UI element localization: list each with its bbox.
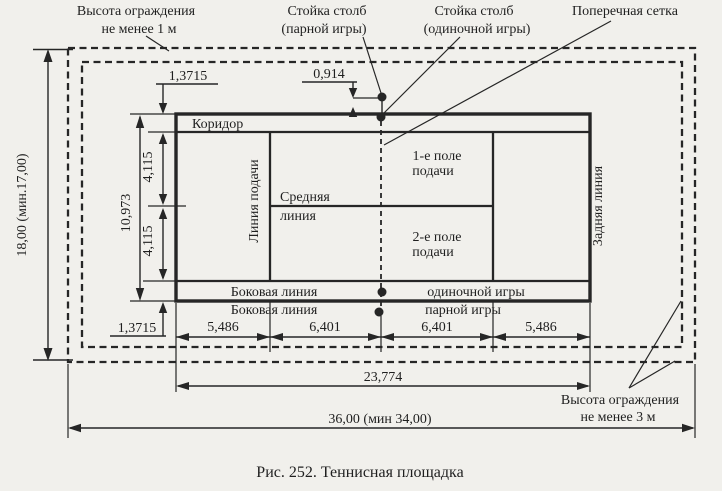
label-sideline-doubles-right: парной игры xyxy=(425,303,501,318)
arrow-court-width-bottom xyxy=(136,288,144,301)
arrow-chain-right xyxy=(577,333,590,341)
label-service-line: Линия подачи xyxy=(247,159,262,243)
arrow-chain-left xyxy=(176,333,189,341)
label-fence-bottom-line2: не менее 3 м xyxy=(580,410,655,425)
dim-court-length: 23,774 xyxy=(364,370,403,385)
label-serve1-line2: подачи xyxy=(412,164,454,179)
figure-caption: Рис. 252. Теннисная площадка xyxy=(256,464,463,481)
label-center-line2: линия xyxy=(280,209,316,224)
dim-serve-width-1: 4,115 xyxy=(141,152,156,183)
label-fence-top-line2: не менее 1 м xyxy=(101,22,176,37)
arrow-down-total-height xyxy=(44,348,53,361)
label-net: Поперечная сетка xyxy=(572,4,679,19)
scanned-page: Высота ограждения не менее 1 м Стойка ст… xyxy=(0,0,722,491)
dim-segment-2: 6,401 xyxy=(309,320,341,335)
arrow-chain-381-l xyxy=(368,333,381,341)
label-post-single-line2: (одиночной игры) xyxy=(424,22,531,37)
dim-alley-bottom: 1,3715 xyxy=(118,321,157,336)
arrow-up-total-height xyxy=(44,49,53,62)
label-sideline-doubles-left: Боковая линия xyxy=(231,303,318,318)
dim-serve-width-2: 4,115 xyxy=(141,226,156,257)
label-fence-top-line1: Высота ограждения xyxy=(77,4,196,19)
dim-segment-3: 6,401 xyxy=(421,320,453,335)
arrow-post-offset-down xyxy=(349,88,357,98)
label-serve2-line2: подачи xyxy=(412,245,454,260)
arrow-chain-493-r xyxy=(493,333,506,341)
arrow-chain-493-l xyxy=(480,333,493,341)
label-sideline-singles-left: Боковая линия xyxy=(231,285,318,300)
label-serve2-line1: 2-е поле xyxy=(413,230,462,245)
label-sideline-singles-right: одиночной игры xyxy=(427,285,525,300)
dim-alley-top: 1,3715 xyxy=(169,69,208,84)
dim-total-height: 18,00 (мин.17,00) xyxy=(15,153,30,257)
net-post-dot-doubles-bottom xyxy=(375,308,384,317)
arrow-chain-381-r xyxy=(381,333,394,341)
label-fence-bottom-line1: Высота ограждения xyxy=(561,393,680,408)
label-center-line1: Средняя xyxy=(280,190,330,205)
arrow-post-offset-up xyxy=(349,107,357,117)
dim-post-offset: 0,914 xyxy=(313,67,345,82)
leader-fence-bottom-b xyxy=(629,361,675,388)
leader-net xyxy=(384,21,611,145)
label-corridor: Коридор xyxy=(192,117,243,132)
arrow-court-length-left xyxy=(176,382,189,390)
dim-court-width: 10,973 xyxy=(119,194,134,233)
court-boundary-rect xyxy=(176,114,590,301)
dim-segment-1: 5,486 xyxy=(207,320,239,335)
arrow-court-width-top xyxy=(136,115,144,128)
net-post-dot-singles-bottom xyxy=(378,288,387,297)
dim-segment-4: 5,486 xyxy=(525,320,557,335)
label-post-pair-line2: (парной игры) xyxy=(281,22,366,37)
arrow-serve-w2-down xyxy=(159,269,167,280)
net-post-dot-singles-top xyxy=(377,113,386,122)
arrow-court-length-right xyxy=(577,382,590,390)
leader-post-doubles xyxy=(363,37,381,93)
arrow-alley-top-down xyxy=(159,103,167,114)
leader-fence-bottom-a xyxy=(629,301,681,388)
arrow-total-width-left xyxy=(68,424,81,432)
arrow-chain-270-r xyxy=(270,333,283,341)
arrow-chain-270-l xyxy=(257,333,270,341)
label-post-pair-line1: Стойка столб xyxy=(288,4,367,19)
dim-total-width: 36,00 (мин 34,00) xyxy=(328,412,432,427)
label-post-single-line1: Стойка столб xyxy=(435,4,514,19)
label-serve1-line1: 1-е поле xyxy=(413,149,462,164)
net-post-dot-doubles-top xyxy=(378,93,387,102)
tennis-court-diagram: Высота ограждения не менее 1 м Стойка ст… xyxy=(0,0,722,491)
label-back-line: Задняя линия xyxy=(591,165,606,246)
arrow-total-width-right xyxy=(682,424,695,432)
arrow-serve-w1-down xyxy=(159,194,167,205)
